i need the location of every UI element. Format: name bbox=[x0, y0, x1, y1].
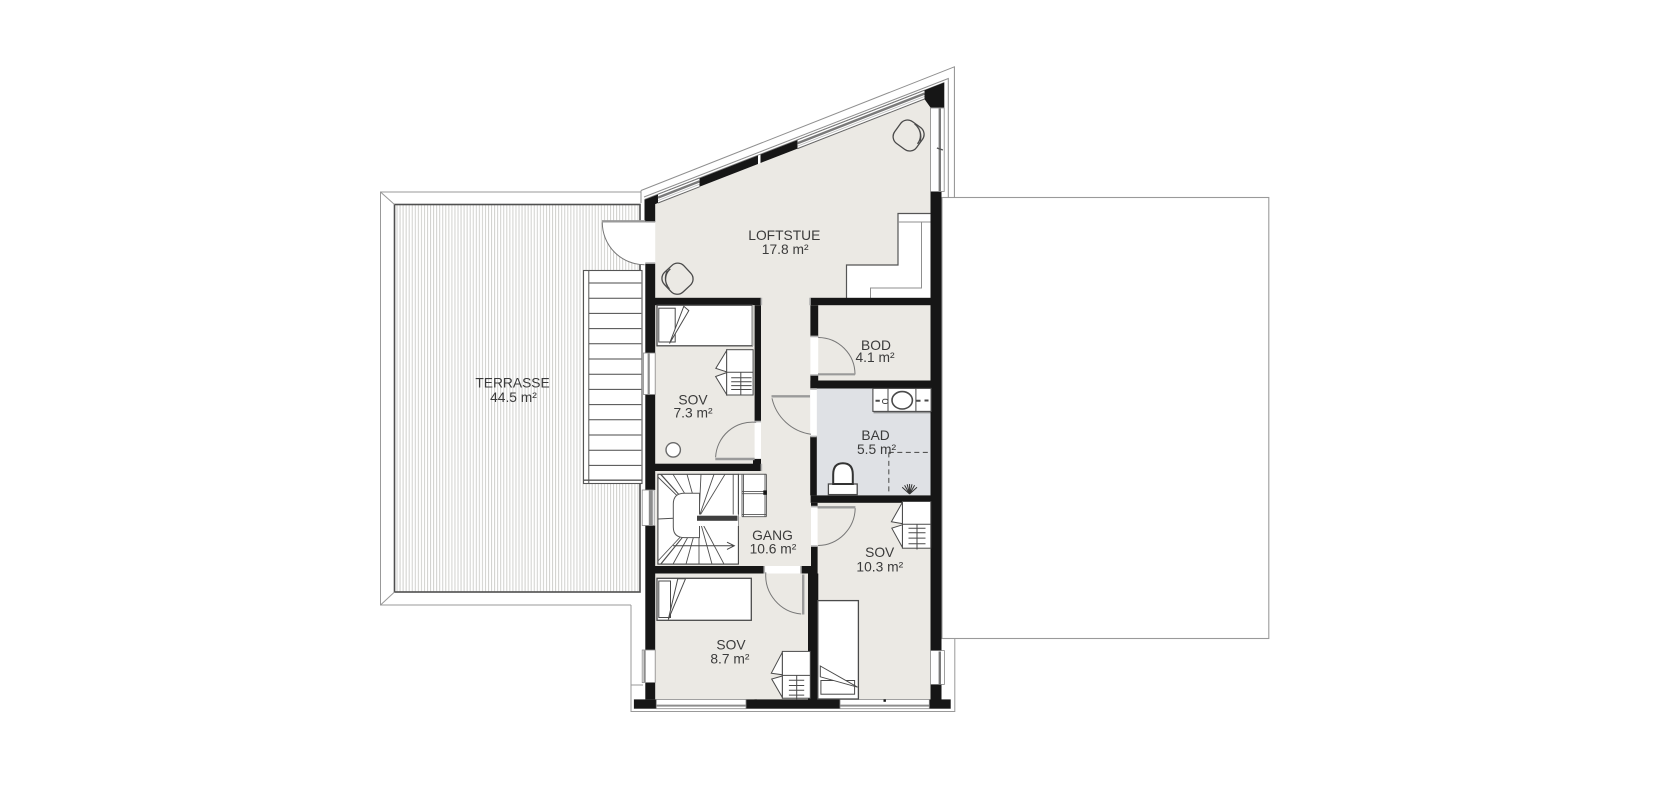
svg-text:4.1 m²: 4.1 m² bbox=[855, 350, 895, 365]
svg-text:7.3 m²: 7.3 m² bbox=[673, 406, 713, 421]
svg-text:LOFTSTUE: LOFTSTUE bbox=[748, 228, 820, 243]
svg-text:44.5 m²: 44.5 m² bbox=[490, 390, 537, 405]
svg-text:BAD: BAD bbox=[861, 428, 889, 443]
svg-text:17.8 m²: 17.8 m² bbox=[762, 242, 809, 257]
svg-text:5.5 m²: 5.5 m² bbox=[857, 442, 897, 457]
svg-text:10.3 m²: 10.3 m² bbox=[856, 560, 903, 575]
svg-text:10.6 m²: 10.6 m² bbox=[750, 542, 797, 557]
svg-text:SOV: SOV bbox=[865, 545, 895, 560]
svg-text:SOV: SOV bbox=[716, 638, 746, 653]
svg-text:TERRASSE: TERRASSE bbox=[475, 376, 549, 391]
svg-text:8.7 m²: 8.7 m² bbox=[710, 652, 750, 667]
